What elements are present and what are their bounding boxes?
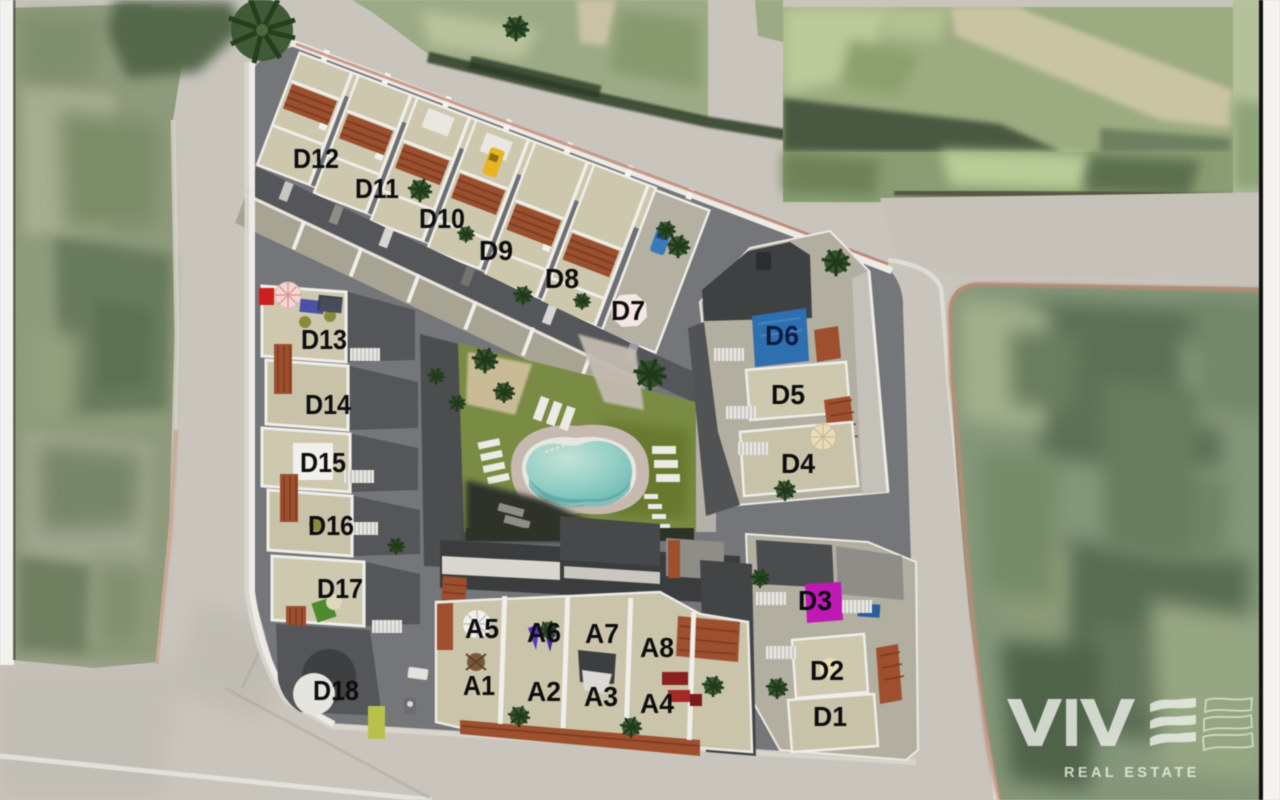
svg-text:D2: D2 — [810, 655, 844, 686]
svg-text:A6: A6 — [527, 617, 561, 648]
svg-text:D5: D5 — [771, 379, 805, 410]
svg-text:A5: A5 — [465, 613, 499, 644]
svg-text:D1: D1 — [813, 701, 847, 732]
svg-text:D11: D11 — [355, 173, 399, 204]
svg-text:A4: A4 — [640, 688, 674, 719]
svg-text:A1: A1 — [463, 670, 495, 701]
svg-text:D17: D17 — [317, 573, 363, 604]
svg-text:A7: A7 — [585, 618, 619, 649]
svg-text:D4: D4 — [781, 448, 815, 479]
svg-text:D13: D13 — [301, 324, 347, 355]
svg-text:A2: A2 — [527, 676, 561, 707]
svg-text:D18: D18 — [313, 675, 359, 706]
svg-text:D8: D8 — [545, 263, 579, 294]
svg-text:D6: D6 — [765, 320, 799, 351]
svg-text:A8: A8 — [640, 632, 674, 663]
svg-text:D7: D7 — [611, 295, 645, 326]
svg-text:D12: D12 — [293, 143, 339, 174]
svg-text:D15: D15 — [300, 447, 346, 478]
svg-text:D10: D10 — [419, 203, 465, 234]
svg-text:D14: D14 — [305, 389, 351, 420]
svg-text:A3: A3 — [584, 681, 618, 712]
svg-text:D9: D9 — [479, 235, 513, 266]
svg-text:D16: D16 — [308, 510, 354, 541]
svg-text:REAL ESTATE: REAL ESTATE — [1064, 765, 1200, 781]
svg-text:D3: D3 — [798, 585, 832, 616]
